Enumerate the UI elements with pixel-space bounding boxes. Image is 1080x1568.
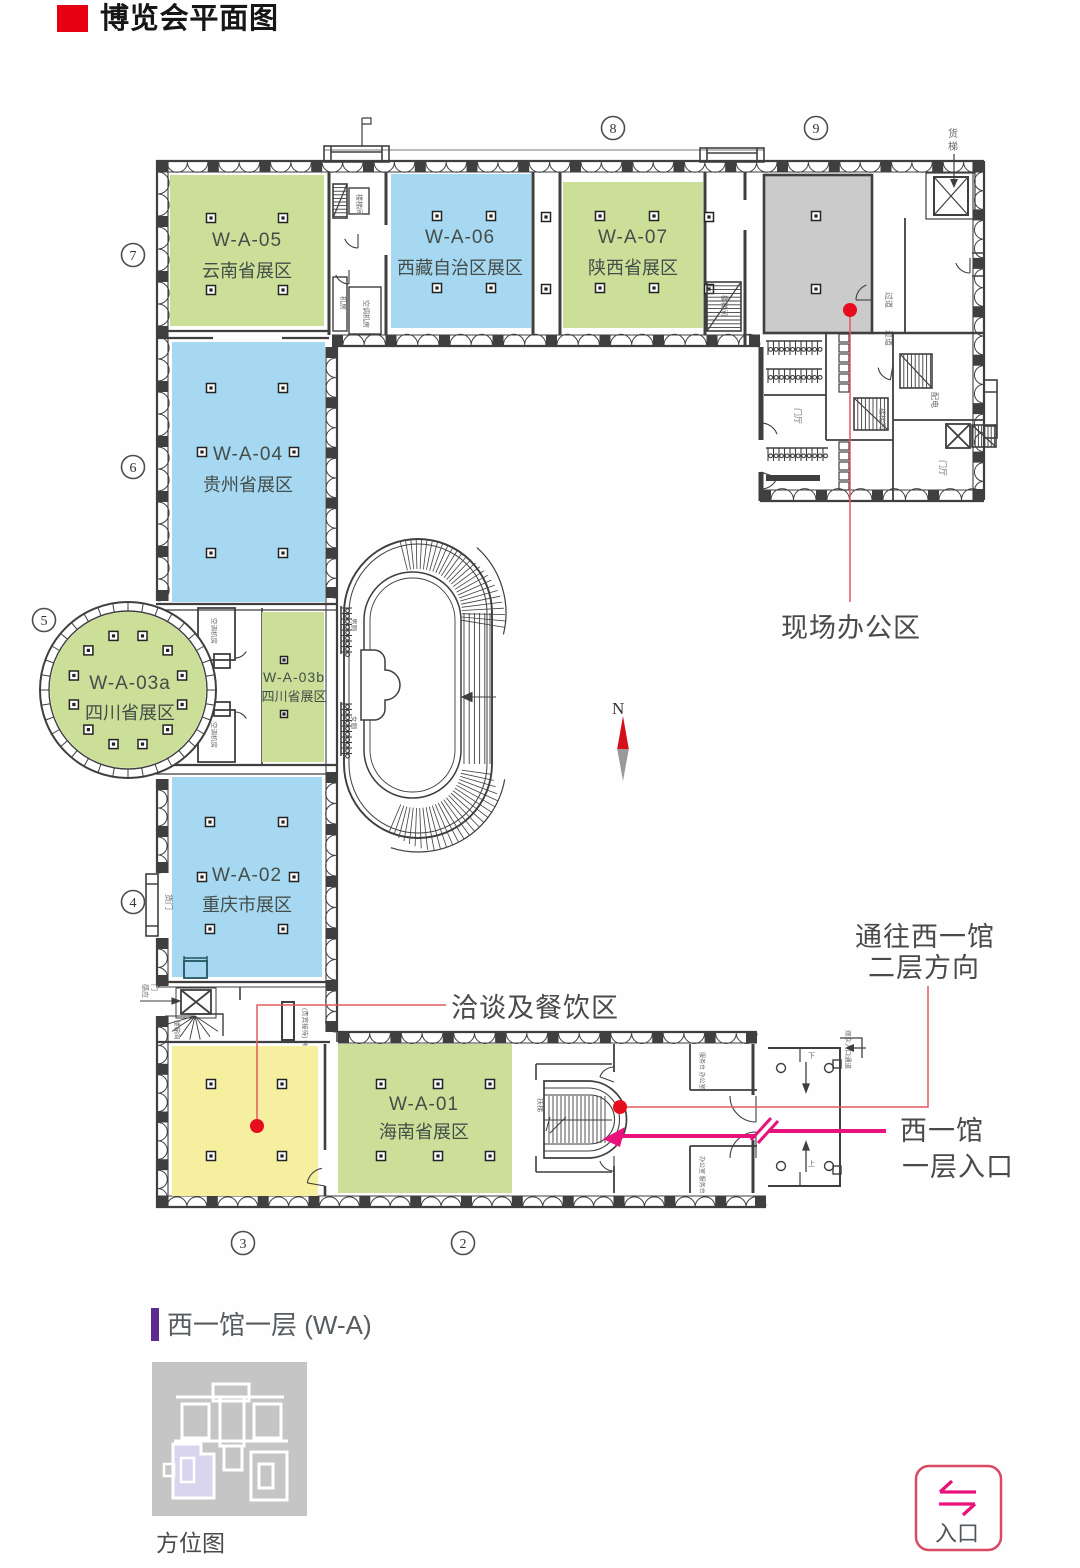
svg-text:货: 货: [948, 127, 958, 140]
svg-text:男厕: 男厕: [350, 618, 358, 632]
svg-text:配电: 配电: [930, 392, 940, 408]
svg-text:W-A-02: W-A-02: [212, 865, 282, 886]
svg-text:门厅: 门厅: [938, 460, 948, 476]
svg-text:3: 3: [240, 1237, 247, 1252]
svg-text:云南省展区: 云南省展区: [202, 261, 292, 281]
svg-text:W-A-04: W-A-04: [213, 444, 283, 465]
svg-text:四川省展区: 四川省展区: [261, 689, 326, 704]
svg-text:7: 7: [130, 249, 137, 264]
svg-text:方位图: 方位图: [156, 1530, 225, 1556]
svg-text:入口: 入口: [935, 1521, 979, 1546]
svg-text:洽谈及餐饮区: 洽谈及餐饮区: [451, 993, 619, 1023]
svg-text:W-A-03b: W-A-03b: [263, 669, 325, 685]
svg-text:W-A-06: W-A-06: [425, 227, 495, 248]
svg-text:梯: 梯: [948, 140, 958, 153]
svg-text:西藏自治区展区: 西藏自治区展区: [397, 258, 523, 278]
svg-text:门厅: 门厅: [793, 408, 803, 424]
svg-text:6: 6: [130, 461, 137, 476]
svg-text:门: 门: [150, 984, 159, 991]
svg-text:空调机房: 空调机房: [210, 618, 219, 644]
svg-text:楼梯间: 楼梯间: [173, 1020, 182, 1040]
svg-text:女厕: 女厕: [350, 716, 359, 730]
svg-text:W-A-03a: W-A-03a: [89, 673, 171, 694]
svg-text:货门: 货门: [164, 894, 174, 910]
svg-text:重庆市展区: 重庆市展区: [202, 895, 292, 915]
svg-text:下: 下: [808, 1052, 815, 1060]
svg-text:西一馆一层 (W-A): 西一馆一层 (W-A): [167, 1310, 372, 1340]
svg-text:N: N: [612, 699, 624, 718]
svg-text:二层方向: 二层方向: [868, 953, 980, 983]
svg-text:西一馆: 西一馆: [900, 1116, 984, 1146]
svg-text:博览会平面图: 博览会平面图: [100, 2, 279, 35]
svg-text:空调机房: 空调机房: [210, 722, 219, 748]
svg-text:W-A-01: W-A-01: [389, 1094, 459, 1115]
svg-text:现场办公区: 现场办公区: [781, 613, 921, 643]
svg-text:服务台 办公室: 服务台 办公室: [698, 1052, 706, 1090]
svg-text:通往西一馆: 通往西一馆: [855, 922, 995, 952]
svg-text:一层入口: 一层入口: [902, 1152, 1014, 1182]
svg-text:2: 2: [460, 1237, 467, 1252]
svg-text:贵州省展区: 贵州省展区: [203, 475, 293, 495]
svg-text:9: 9: [813, 122, 820, 137]
svg-text:W-A-05: W-A-05: [212, 230, 282, 251]
svg-text:四川省展区: 四川省展区: [85, 703, 175, 723]
svg-text:陕西省展区: 陕西省展区: [588, 258, 678, 278]
svg-text:感应: 感应: [141, 984, 150, 998]
svg-text:过道: 过道: [884, 292, 894, 308]
svg-text:4: 4: [130, 896, 137, 911]
svg-text:扶梯: 扶梯: [536, 1098, 545, 1112]
svg-text:办公室 服务台: 办公室 服务台: [698, 1156, 706, 1194]
svg-text:海南省展区: 海南省展区: [379, 1122, 469, 1142]
svg-text:楼梯间: 楼梯间: [720, 295, 729, 316]
svg-text:机房: 机房: [339, 296, 348, 310]
svg-text:上: 上: [808, 1159, 815, 1168]
svg-text:W-A-07: W-A-07: [598, 227, 668, 248]
svg-text:楼梯间: 楼梯间: [355, 194, 364, 215]
svg-text:空调机房: 空调机房: [362, 300, 371, 328]
svg-text:8: 8: [610, 122, 617, 137]
svg-text:5: 5: [41, 614, 48, 629]
svg-text:楼梯间: 楼梯间: [878, 408, 887, 429]
